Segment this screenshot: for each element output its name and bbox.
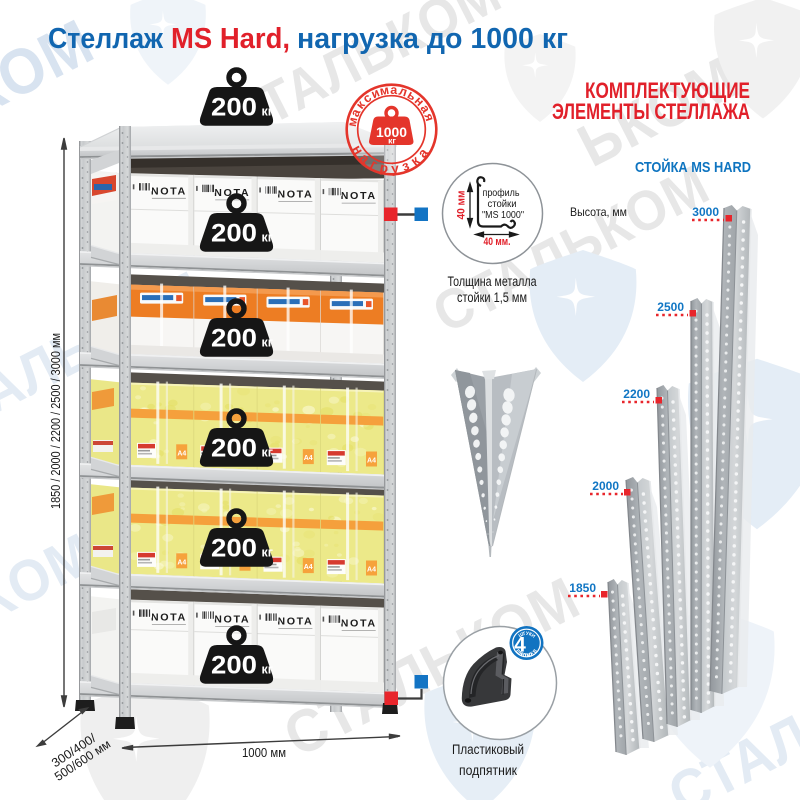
svg-text:кг: кг bbox=[262, 231, 273, 245]
svg-text:3000: 3000 bbox=[692, 205, 719, 219]
svg-text:кг: кг bbox=[262, 663, 273, 677]
svg-text:Пластиковый: Пластиковый bbox=[452, 742, 524, 757]
svg-text:NOTA: NOTA bbox=[341, 619, 377, 630]
svg-text:подпятник: подпятник bbox=[459, 763, 517, 778]
svg-text:стойки: стойки bbox=[488, 199, 517, 210]
svg-text:200: 200 bbox=[211, 94, 257, 122]
svg-text:1850 / 2000 / 2200 / 2500 / 30: 1850 / 2000 / 2200 / 2500 / 3000 мм bbox=[48, 333, 63, 509]
svg-text:Толщина металла: Толщина металла bbox=[448, 274, 537, 289]
svg-text:1850: 1850 bbox=[569, 581, 596, 595]
svg-text:200: 200 bbox=[211, 435, 257, 463]
svg-text:NOTA: NOTA bbox=[277, 617, 313, 628]
svg-text:ЭЛЕМЕНТЫ СТЕЛЛАЖА: ЭЛЕМЕНТЫ СТЕЛЛАЖА bbox=[552, 99, 750, 124]
svg-text:A4: A4 bbox=[177, 559, 186, 566]
svg-text:A4: A4 bbox=[304, 455, 313, 462]
svg-text:кг: кг bbox=[262, 546, 273, 560]
svg-text:2000: 2000 bbox=[592, 479, 619, 493]
svg-text:стойки 1,5 мм: стойки 1,5 мм bbox=[457, 290, 527, 305]
svg-text:1000 мм: 1000 мм bbox=[242, 746, 286, 760]
svg-text:A4: A4 bbox=[304, 564, 313, 571]
svg-text:Стеллаж: Стеллаж bbox=[48, 23, 163, 55]
svg-text:кг: кг bbox=[388, 136, 396, 146]
svg-text:A4: A4 bbox=[177, 450, 186, 457]
svg-text:профиль: профиль bbox=[483, 187, 520, 199]
svg-text:Высота, мм: Высота, мм bbox=[570, 205, 627, 219]
svg-text:нагрузка до 1000 кг: нагрузка до 1000 кг bbox=[297, 23, 568, 55]
svg-text:NOTA: NOTA bbox=[214, 615, 250, 626]
svg-text:NOTA: NOTA bbox=[151, 613, 187, 624]
svg-text:40 мм: 40 мм bbox=[456, 191, 468, 220]
svg-text:MS Hard,: MS Hard, bbox=[171, 23, 290, 55]
svg-text:NOTA: NOTA bbox=[341, 191, 377, 202]
svg-text:NOTA: NOTA bbox=[151, 186, 187, 197]
svg-text:кг: кг bbox=[262, 336, 273, 350]
svg-text:200: 200 bbox=[211, 220, 257, 248]
svg-text:A4: A4 bbox=[367, 458, 376, 465]
svg-text:NOTA: NOTA bbox=[277, 190, 313, 201]
svg-text:2200: 2200 bbox=[623, 387, 650, 401]
svg-text:200: 200 bbox=[211, 535, 257, 563]
svg-text:СТОЙКА MS HARD: СТОЙКА MS HARD bbox=[635, 158, 751, 176]
svg-text:кг: кг bbox=[262, 105, 273, 119]
svg-text:40 мм.: 40 мм. bbox=[484, 236, 511, 248]
svg-text:200: 200 bbox=[211, 325, 257, 353]
svg-text:200: 200 bbox=[211, 652, 257, 680]
svg-text:A4: A4 bbox=[367, 567, 376, 574]
svg-text:2500: 2500 bbox=[657, 300, 684, 314]
svg-text:кг: кг bbox=[262, 446, 273, 460]
svg-text:"MS 1000": "MS 1000" bbox=[482, 210, 524, 221]
